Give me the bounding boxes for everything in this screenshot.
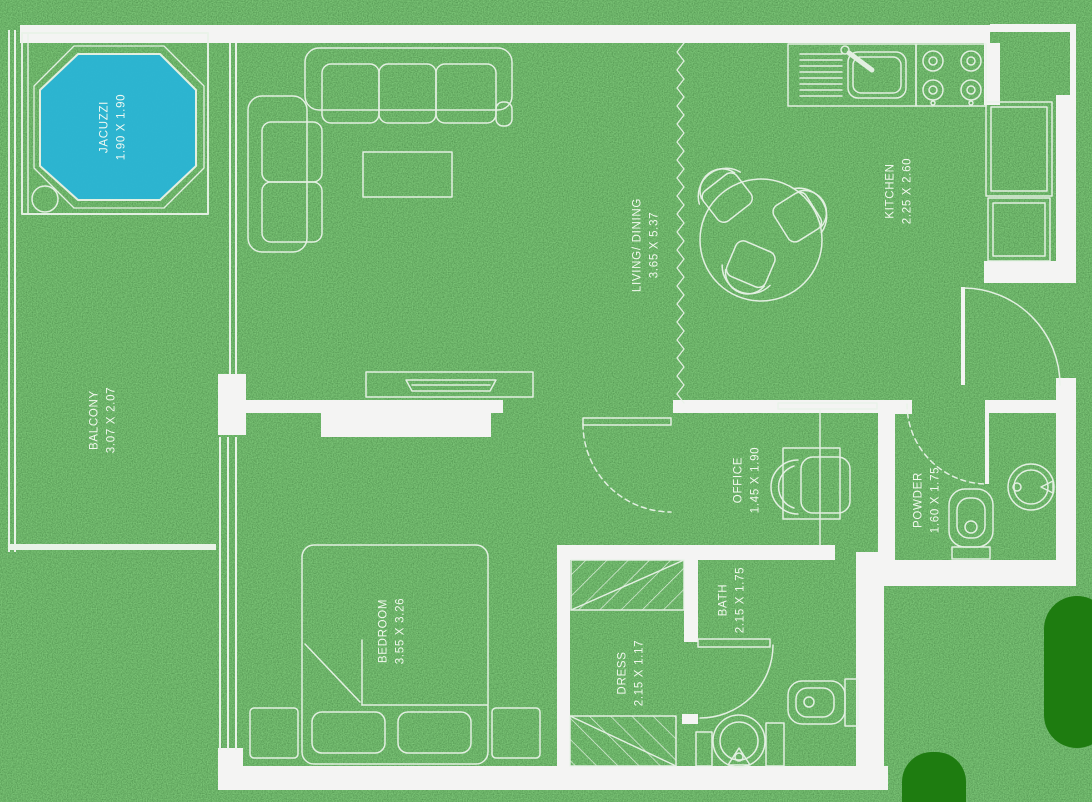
wall-exterior-right	[1056, 95, 1076, 283]
bedroom-window-line	[235, 437, 237, 750]
room-name: KITCHEN	[882, 163, 899, 218]
room-dims: 1.45 X 1.90	[747, 447, 764, 514]
room-label-bedroom: BEDROOM 3.55 X 3.26	[375, 598, 408, 665]
balcony-rail-line	[8, 30, 10, 552]
wall-powder-top-left	[878, 400, 912, 414]
wall-dress-bath-divider-top	[684, 558, 698, 642]
wall-kitchen-right-upper	[984, 43, 1000, 105]
balcony-rail-line	[14, 30, 16, 552]
room-label-kitchen: KITCHEN 2.25 X 2.60	[882, 158, 915, 225]
room-label-balcony: BALCONY 3.07 X 2.07	[86, 387, 119, 454]
wall-bottom	[218, 766, 888, 790]
entry-door-leaf	[961, 287, 965, 385]
wall-powder-bottom	[856, 560, 1076, 586]
room-name: LIVING/ DINING	[629, 198, 646, 292]
room-dims: 2.15 X 1.75	[732, 567, 749, 634]
living-window-line	[229, 43, 231, 374]
room-dims: 3.55 X 3.26	[392, 598, 409, 665]
bush-icon	[902, 752, 966, 802]
bedroom-window-line	[227, 437, 229, 750]
powder-door-leaf	[985, 404, 989, 484]
room-label-powder: POWDER 1.60 X 1.75	[910, 467, 943, 534]
grass-background	[0, 0, 1092, 802]
room-dims: 3.65 X 5.37	[646, 212, 663, 279]
wall-bedroom-right	[557, 545, 570, 790]
bedroom-window-line	[219, 437, 221, 750]
room-label-jacuzzi: JACUZZI 1.90 X 1.90	[96, 94, 129, 161]
wall-powder-top-right	[985, 400, 1068, 413]
wall-dress-bath-divider-bottom	[682, 714, 698, 724]
wall-powder-left	[878, 400, 895, 562]
room-name: JACUZZI	[96, 101, 113, 153]
room-dims: 1.60 X 1.75	[927, 467, 944, 534]
room-dims: 3.07 X 2.07	[103, 387, 120, 454]
balcony-door-threshold	[218, 374, 246, 435]
wall-top	[20, 25, 990, 43]
room-name: BALCONY	[86, 390, 103, 450]
wardrobe-block	[321, 412, 491, 437]
floor-plan: JACUZZI 1.90 X 1.90 BALCONY 3.07 X 2.07 …	[0, 0, 1092, 802]
wall-dress-top	[557, 545, 835, 560]
bush-icon	[1044, 596, 1092, 748]
room-name: BEDROOM	[375, 599, 392, 663]
wall-kitchen-bottom-right	[984, 261, 1076, 283]
room-dims: 2.25 X 2.60	[899, 158, 916, 225]
room-dims: 2.15 X 1.17	[631, 640, 648, 707]
room-name: DRESS	[614, 651, 631, 694]
room-name: POWDER	[910, 472, 927, 528]
wall-middle-right-segment	[673, 400, 880, 413]
room-name: OFFICE	[730, 457, 747, 503]
wall-top-right-thin	[990, 24, 1076, 32]
room-dims: 1.90 X 1.90	[113, 94, 130, 161]
wall-top-right-vert-thin	[1070, 32, 1076, 97]
room-name: BATH	[715, 584, 732, 617]
room-label-dress: DRESS 2.15 X 1.17	[614, 640, 647, 707]
living-window-line	[235, 43, 237, 374]
room-label-bath: BATH 2.15 X 1.75	[715, 567, 748, 634]
room-label-office: OFFICE 1.45 X 1.90	[730, 447, 763, 514]
balcony-rail-bottom	[8, 544, 216, 550]
room-label-living-dining: LIVING/ DINING 3.65 X 5.37	[629, 198, 662, 292]
wall-bath-right	[856, 552, 884, 790]
